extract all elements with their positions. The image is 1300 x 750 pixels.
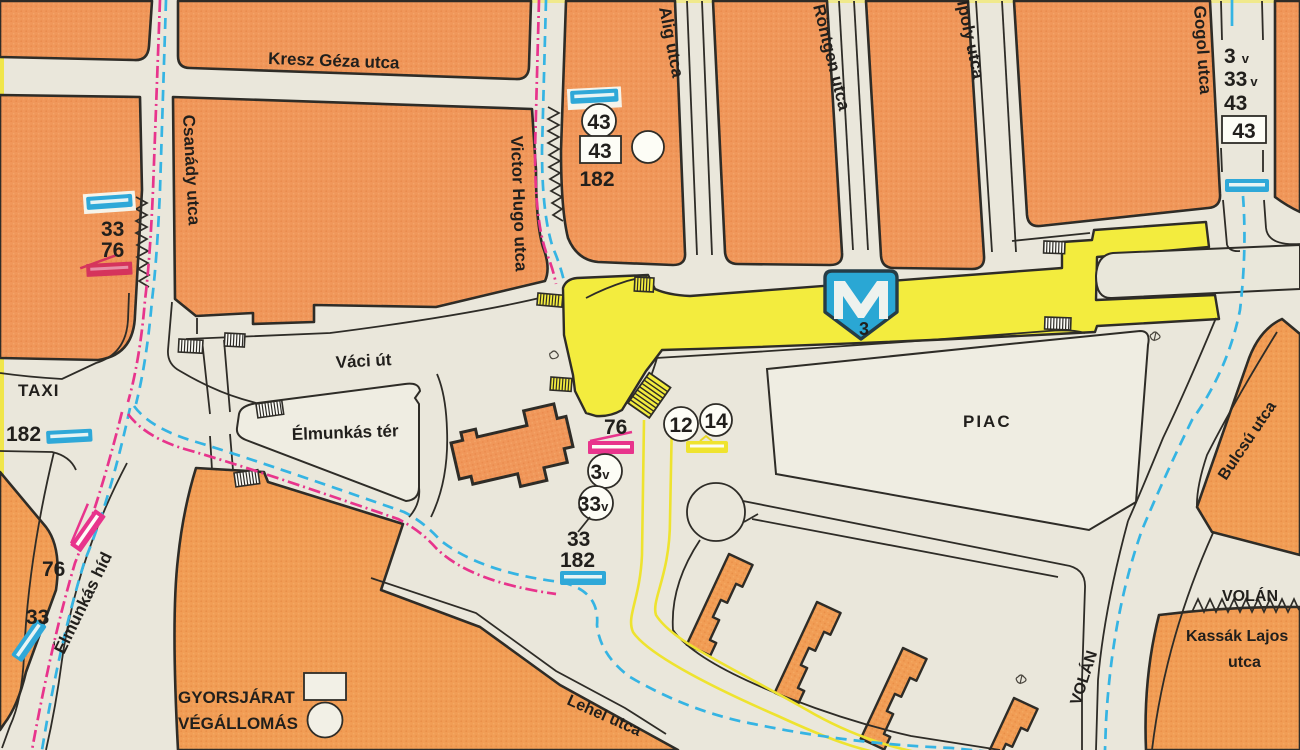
svg-text:Váci út: Váci út <box>335 350 392 372</box>
svg-text:TAXI: TAXI <box>18 381 59 400</box>
svg-text:14: 14 <box>704 410 728 433</box>
svg-text:182: 182 <box>6 423 41 446</box>
svg-text:VÉGÁLLOMÁS: VÉGÁLLOMÁS <box>178 714 298 733</box>
svg-text:Kassák Lajos: Kassák Lajos <box>1186 628 1288 645</box>
svg-text:182: 182 <box>560 549 595 572</box>
svg-text:33: 33 <box>101 218 124 241</box>
svg-text:43: 43 <box>1232 120 1255 143</box>
svg-text:GYORSJÁRAT: GYORSJÁRAT <box>178 688 295 707</box>
svg-text:43: 43 <box>587 111 610 134</box>
svg-text:33: 33 <box>567 528 590 551</box>
svg-text:Élmunkás tér: Élmunkás tér <box>291 421 399 444</box>
svg-text:utca: utca <box>1228 654 1261 671</box>
svg-text:PIAC: PIAC <box>963 412 1012 431</box>
svg-text:43: 43 <box>588 140 611 163</box>
svg-text:33: 33 <box>26 606 49 629</box>
svg-text:76: 76 <box>42 558 65 581</box>
svg-text:182: 182 <box>579 168 614 191</box>
svg-text:3: 3 <box>859 319 869 339</box>
svg-text:76: 76 <box>101 239 124 262</box>
svg-text:43: 43 <box>1224 92 1247 115</box>
svg-text:76: 76 <box>604 416 627 439</box>
svg-text:VOLÁN: VOLÁN <box>1222 586 1278 605</box>
svg-text:12: 12 <box>669 414 692 437</box>
